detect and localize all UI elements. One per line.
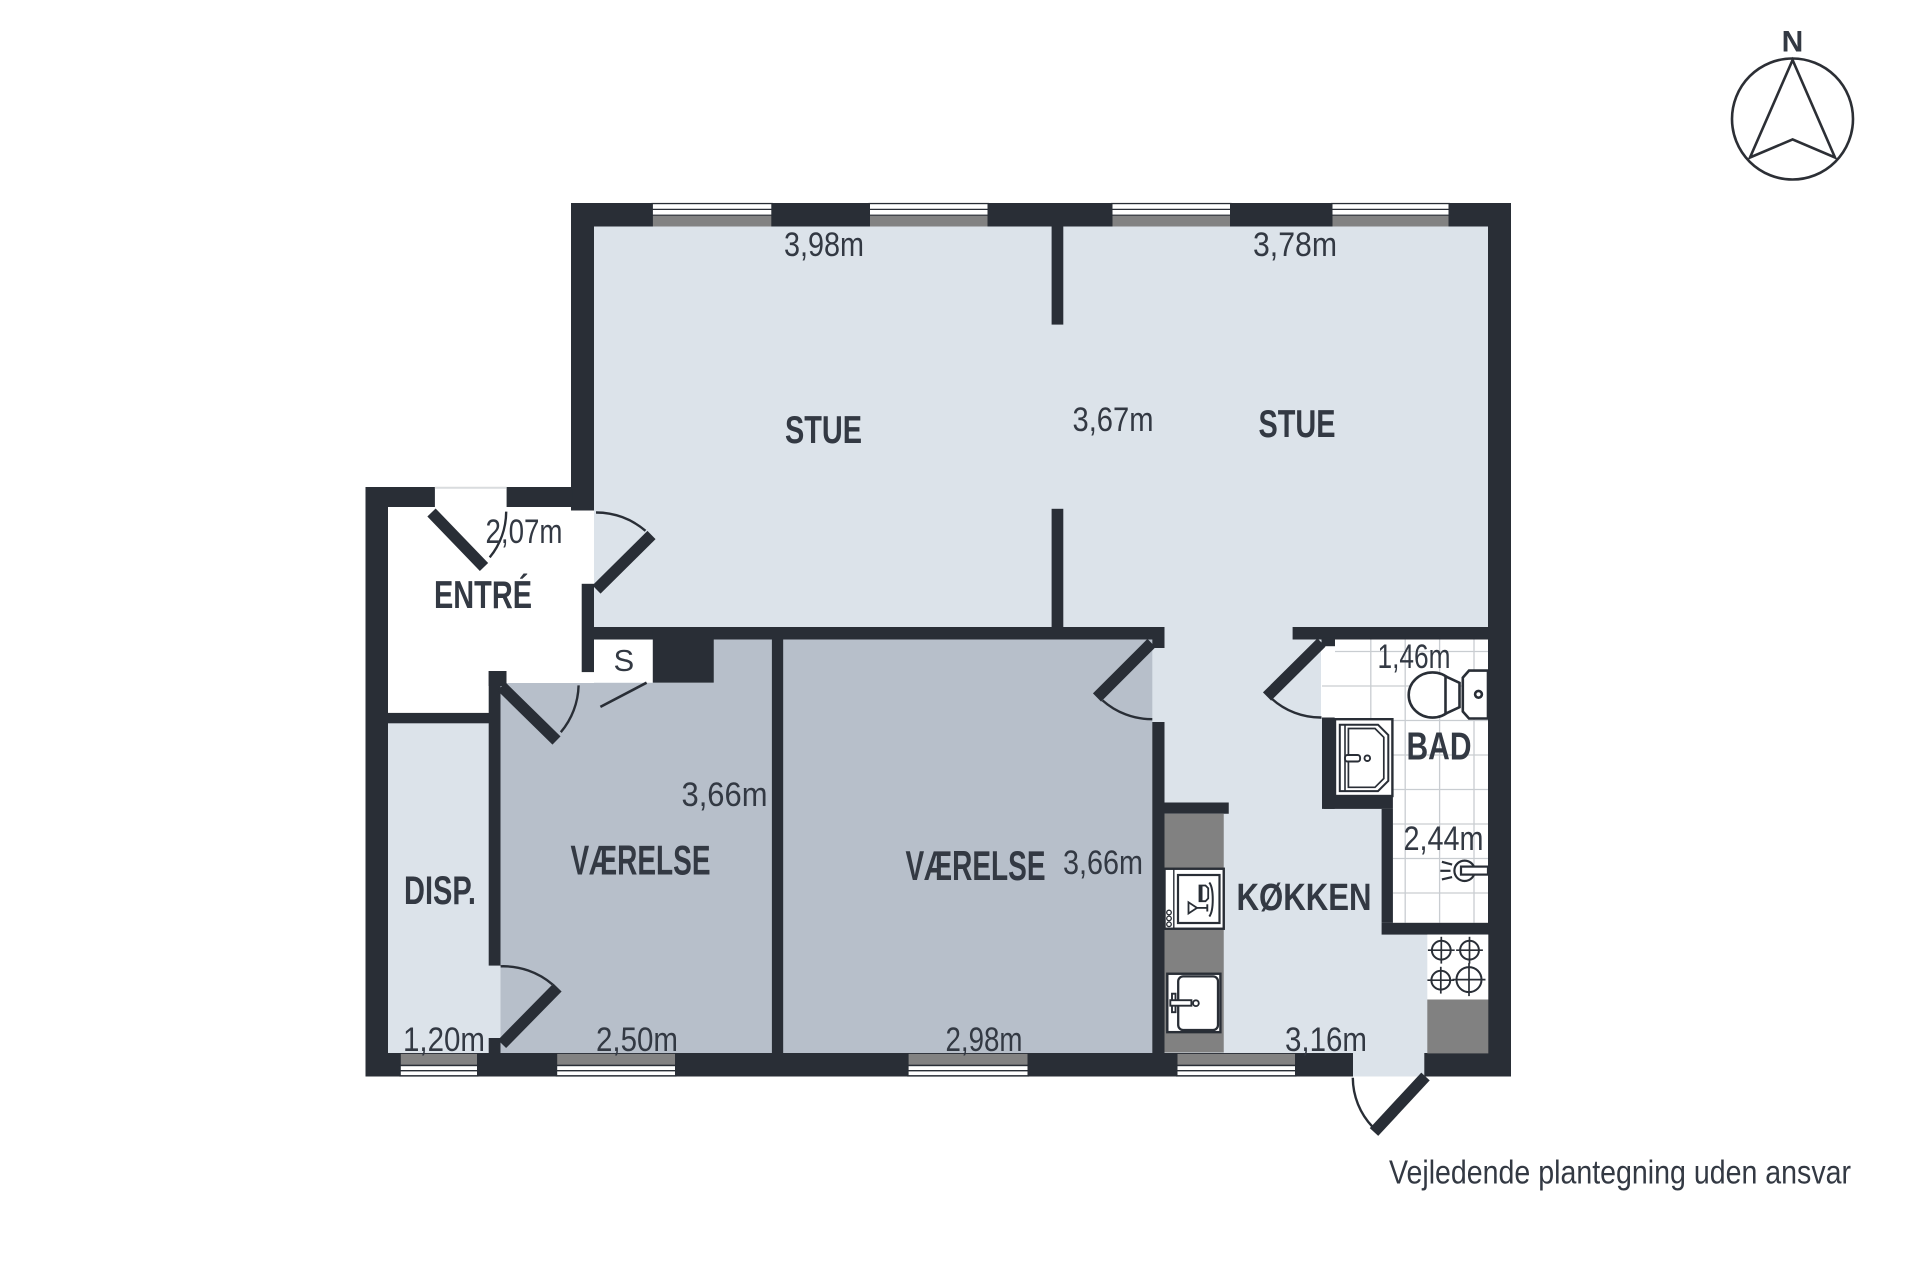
svg-text:1,20m: 1,20m	[403, 1021, 485, 1059]
svg-text:2,07m: 2,07m	[486, 513, 563, 551]
svg-text:3,78m: 3,78m	[1253, 226, 1337, 264]
svg-text:S: S	[614, 643, 635, 678]
svg-text:3,67m: 3,67m	[1073, 401, 1154, 439]
svg-text:3,66m: 3,66m	[1063, 844, 1143, 882]
svg-text:VÆRELSE: VÆRELSE	[906, 842, 1046, 889]
svg-text:VÆRELSE: VÆRELSE	[571, 837, 711, 884]
svg-text:BAD: BAD	[1407, 726, 1472, 769]
svg-text:2,44m: 2,44m	[1404, 820, 1484, 858]
svg-text:3,66m: 3,66m	[682, 776, 768, 814]
svg-text:2,98m: 2,98m	[946, 1021, 1023, 1059]
svg-text:ENTRÉ: ENTRÉ	[434, 573, 532, 617]
svg-text:STUE: STUE	[1259, 403, 1336, 446]
svg-text:Vejledende plantegning uden an: Vejledende plantegning uden ansvar	[1389, 1154, 1851, 1191]
svg-text:3,98m: 3,98m	[784, 226, 864, 264]
svg-text:1,46m: 1,46m	[1378, 638, 1451, 676]
svg-text:KØKKEN: KØKKEN	[1237, 877, 1372, 919]
svg-text:DISP.: DISP.	[404, 869, 476, 913]
svg-text:STUE: STUE	[785, 409, 862, 452]
svg-text:3,16m: 3,16m	[1285, 1021, 1367, 1059]
svg-text:2,50m: 2,50m	[596, 1021, 678, 1059]
svg-text:N: N	[1782, 26, 1804, 59]
